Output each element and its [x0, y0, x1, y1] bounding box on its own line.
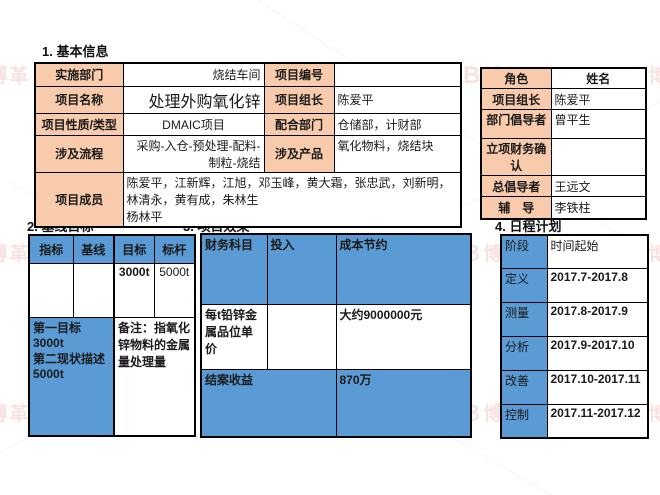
roles-table: 角色 姓名 项目组长 陈爱平 部门倡导者 曾平生 立项财务确认 总倡导者 王远文…: [480, 67, 647, 220]
field-value: 采购-入仓-预处理-配料-制粒-烧结: [123, 135, 264, 172]
effects-table: 财务科目 投入 成本节约 每t铅锌金属品位单价 大约9000000元 结案收益 …: [200, 233, 472, 438]
effects-saving: 大约9000000元: [336, 304, 471, 369]
baseline-benchmark: 5000t: [154, 263, 195, 317]
field-label: 项目名称: [35, 86, 123, 113]
field-value: 氧化物料，烧结块: [334, 135, 461, 172]
schedule-phase: 定义: [501, 268, 547, 302]
baseline-table: 指标 基线 目标 标杆 3000t 5000t 第一目标 3000t 第二现状描…: [28, 234, 196, 437]
effects-subject: 每t铅锌金属品位单价: [201, 304, 267, 369]
effects-header: 投入: [267, 234, 336, 304]
schedule-time: 2017.8-2017.9: [547, 302, 648, 336]
role-name: 李铁柱: [551, 197, 646, 219]
brand-watermark: B博革: [0, 64, 30, 88]
schedule-phase: 控制: [501, 404, 547, 438]
effects-final-label: 结案收益: [201, 369, 336, 437]
role-name: 陈爱平: [551, 89, 646, 110]
effects-header: 财务科目: [201, 234, 267, 304]
schedule-table: 阶段 时间起始 定义 2017.7-2017.8 测量 2017.8-2017.…: [500, 234, 649, 439]
brand-logo-text: 博革: [0, 67, 30, 86]
project-name: 处理外购氧化锌: [123, 86, 264, 113]
role-label: 部门倡导者: [481, 110, 551, 139]
brand-logo-text: 博革: [0, 405, 30, 424]
baseline-header: 标杆: [154, 235, 195, 263]
field-label: 配合部门: [264, 113, 334, 135]
role-label: 总倡导者: [481, 176, 551, 197]
field-value: [334, 63, 461, 86]
schedule-phase: 改善: [501, 370, 547, 404]
schedule-time: 2017.10-2017.11: [547, 370, 648, 404]
basic-info-table: 实施部门 烧结车间 项目编号 项目名称 处理外购氧化锌 项目组长 陈爱平 项目性…: [34, 62, 462, 228]
field-label: 涉及流程: [35, 135, 123, 172]
field-value: 陈爱平: [334, 86, 461, 113]
schedule-time: 2017.7-2017.8: [547, 268, 648, 302]
project-members: 陈爱平，江新辉，江旭，邓玉峰，黄大霜，张忠武，刘新明，林清永，黄有成，朱林生 杨…: [123, 172, 461, 227]
field-label: 项目组长: [264, 86, 334, 113]
brand-logo-text: 博革: [648, 67, 660, 86]
baseline-header: 目标: [114, 235, 154, 263]
slide-canvas: B博革B博革B博革B博革B博革B博革B博革B博革B博革B博革B博革B博革B博革B…: [0, 0, 660, 495]
brand-logo-text: 博革: [648, 245, 660, 264]
field-label: 项目性质/类型: [35, 113, 123, 135]
effects-final-saving: 870万: [336, 369, 471, 437]
schedule-time: 2017.11-2017.12: [547, 404, 648, 438]
field-value: 烧结车间: [123, 63, 264, 86]
roles-header-role: 角色: [481, 68, 551, 89]
role-name: 王远文: [551, 176, 646, 197]
baseline-goal: 第一目标 3000t 第二现状描述 5000t: [29, 317, 114, 436]
field-value: DMAIC项目: [123, 113, 264, 135]
baseline-cell: [73, 263, 114, 317]
role-label: 立项财务确认: [481, 139, 551, 176]
baseline-header: 指标: [29, 235, 73, 263]
baseline-header: 基线: [73, 235, 114, 263]
field-label: 项目编号: [264, 63, 334, 86]
roles-header-name: 姓名: [551, 68, 646, 89]
brand-logo-icon: B: [463, 64, 480, 88]
effects-input: [267, 304, 336, 369]
field-value: 仓储部，计财部: [334, 113, 461, 135]
role-name: [551, 139, 646, 176]
brand-watermark: B博革: [0, 402, 30, 426]
field-label: 项目成员: [35, 172, 123, 227]
schedule-header-time: 时间起始: [547, 235, 648, 268]
baseline-note: 备注：指氧化锌物料的金属量处理量: [114, 317, 195, 436]
role-name: 曾平生: [551, 110, 646, 139]
schedule-time: 2017.9-2017.10: [547, 336, 648, 370]
schedule-phase: 测量: [501, 302, 547, 336]
brand-logo-text: 博革: [648, 405, 660, 424]
brand-watermark: B博革: [0, 242, 30, 266]
schedule-header-phase: 阶段: [501, 235, 547, 268]
role-label: 辅 导: [481, 197, 551, 219]
field-label: 涉及产品: [264, 135, 334, 172]
effects-header: 成本节约: [336, 234, 471, 304]
baseline-target: 3000t: [114, 263, 154, 317]
baseline-cell: [29, 263, 73, 317]
role-label: 项目组长: [481, 89, 551, 110]
brand-logo-text: 博革: [0, 245, 30, 264]
field-label: 实施部门: [35, 63, 123, 86]
section-title-basic-info: 1. 基本信息: [42, 41, 108, 60]
schedule-phase: 分析: [501, 336, 547, 370]
